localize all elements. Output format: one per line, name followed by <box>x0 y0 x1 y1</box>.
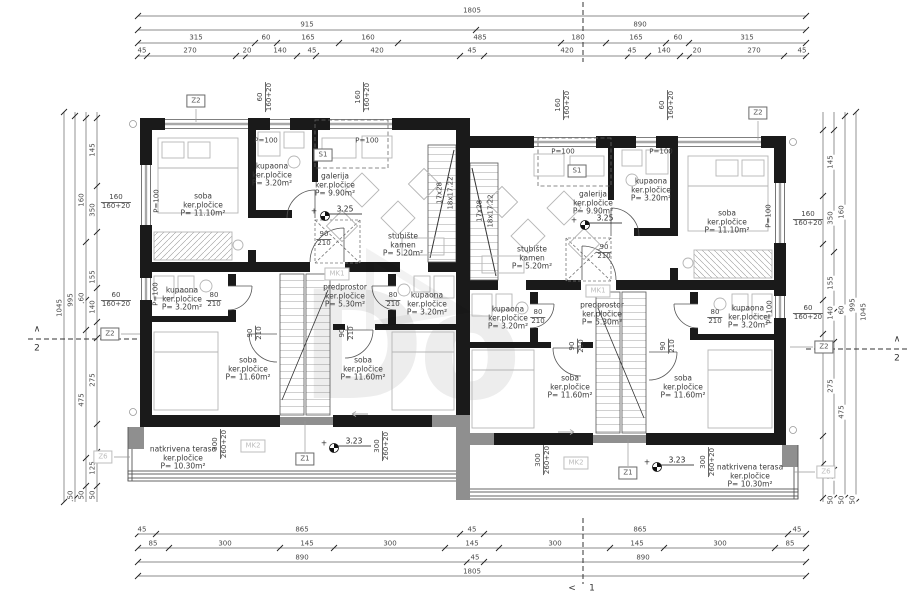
window-size-label: 160160+20 <box>101 194 131 210</box>
dim-label: 890 <box>635 555 650 562</box>
dim-label: 350 <box>828 210 835 225</box>
dim-label: 50 <box>850 495 857 506</box>
dim-label: 45 <box>470 555 481 562</box>
room-label-kupaona: kupaonaker.pločiceP= 3.20m² <box>728 304 768 330</box>
dim-label: 275 <box>90 372 97 387</box>
marker-s1: S1 <box>314 149 333 162</box>
door-size-label: 90210 <box>339 325 355 340</box>
marker-mk1: MK1 <box>324 268 349 281</box>
room-label-galerija: galerijaker.pločiceP= 9.90m² <box>315 172 355 198</box>
dim-label: 85 <box>785 541 796 548</box>
section-marker-arrow: ∧ <box>34 326 41 335</box>
marker-z6: Z6 <box>816 466 835 479</box>
level-plus: + <box>321 439 327 447</box>
dim-label: 350 <box>90 202 97 217</box>
room-label-soba: sobaker.pločiceP= 11.60m² <box>226 356 271 382</box>
dim-label: 180 <box>570 35 585 42</box>
dim-label: 165 <box>628 35 643 42</box>
room-label-soba: sobaker.pločiceP= 11.10m² <box>181 192 226 218</box>
dim-label: 160 <box>79 192 86 207</box>
dim-label: 160 <box>360 35 375 42</box>
dim-label: 475 <box>839 404 846 419</box>
dim-label: 140 <box>656 48 671 55</box>
parapet-label: P=100 <box>649 149 672 156</box>
window-size-label: 300260+20 <box>700 447 716 477</box>
dim-label: 45 <box>467 527 478 534</box>
window-size-label: 60160+20 <box>257 82 273 112</box>
dim-label: 45 <box>307 48 318 55</box>
dim-label: 45 <box>627 48 638 55</box>
marker-z1: Z1 <box>618 467 637 480</box>
stair-riser-label: 18x17.22 <box>488 194 495 227</box>
room-label-terasa: natkrivena terasaker.pločiceP= 10.30m² <box>717 463 783 489</box>
dim-label: 45 <box>467 48 478 55</box>
marker-mk2: MK2 <box>563 457 588 470</box>
section-marker-number: 1 <box>589 585 595 594</box>
parapet-label: P=100 <box>153 282 160 305</box>
door-size-label: 80210 <box>530 309 545 325</box>
room-label-kupaona: kupaonaker.pločiceP= 3.20m² <box>162 286 202 312</box>
room-label-kupaona: kupaonaker.pločiceP= 3.20m² <box>252 162 292 188</box>
parapet-label: P=100 <box>551 149 574 156</box>
dim-label: 485 <box>472 35 487 42</box>
section-marker-number: 2 <box>34 345 40 354</box>
window-size-label: 160160+20 <box>355 82 371 112</box>
parapet-label: P=100 <box>254 138 277 145</box>
dim-label: 155 <box>90 269 97 284</box>
door-size-label: 90210 <box>596 244 611 260</box>
room-label-stubiste: stubištekamenP= 5.20m² <box>383 232 423 258</box>
room-label-terasa: natkrivena terasaker.pločiceP= 10.30m² <box>150 445 216 471</box>
room-label-kupaona: kupaonaker.pločiceP= 3.20m² <box>631 177 671 203</box>
dim-label: 45 <box>797 48 808 55</box>
dim-label: 995 <box>850 297 857 312</box>
dim-label: 165 <box>300 35 315 42</box>
dim-label: 1805 <box>462 569 482 576</box>
window-size-label: 300260+20 <box>374 431 390 461</box>
marker-z6: Z6 <box>93 451 112 464</box>
dim-label: 890 <box>294 555 309 562</box>
plan-drawing <box>0 0 920 604</box>
section-marker-arrow: ∧ <box>894 336 901 345</box>
dim-label: 890 <box>632 22 647 29</box>
room-label-stubiste: stubištekamenP= 5.20m² <box>512 245 552 271</box>
door-size-label: 90210 <box>660 338 676 353</box>
door-size-label: 90210 <box>247 325 263 340</box>
parapet-label: P=100 <box>767 300 774 323</box>
marker-mk1: MK1 <box>585 285 610 298</box>
room-label-predprostor: predprostorker.pločiceP= 5.30m² <box>580 301 624 327</box>
window-size-label: 160160+20 <box>793 211 823 227</box>
room-label-predprostor: predprostorker.pločiceP= 5.30m² <box>323 283 367 309</box>
window-size-label: 160160+20 <box>555 90 571 120</box>
dim-label: 1045 <box>57 298 64 318</box>
dim-label: 420 <box>369 48 384 55</box>
dim-label: 270 <box>182 48 197 55</box>
window-size-label: 300260+20 <box>212 429 228 459</box>
marker-s1: S1 <box>568 165 587 178</box>
parapet-label: P=100 <box>355 138 378 145</box>
dim-label: 140 <box>828 305 835 320</box>
dim-label: 995 <box>68 292 75 307</box>
dim-label: 50 <box>79 490 86 501</box>
marker-z2: Z2 <box>814 341 833 354</box>
level-value: 3.25 <box>337 205 354 213</box>
section-marker-arrow: < <box>568 585 576 594</box>
dim-label: 300 <box>382 541 397 548</box>
stair-riser-label: 17x28 <box>477 200 484 222</box>
dim-label: 420 <box>559 48 574 55</box>
dim-label: 300 <box>547 541 562 548</box>
dim-label: 270 <box>746 48 761 55</box>
windows <box>142 120 393 301</box>
dim-label: 140 <box>272 48 287 55</box>
level-value: 3.23 <box>346 437 363 445</box>
dim-label: 915 <box>299 22 314 29</box>
door-size-label: 80210 <box>707 309 722 325</box>
dim-label: 145 <box>464 541 479 548</box>
level-plus: + <box>644 458 650 466</box>
dim-label: 145 <box>90 142 97 157</box>
dim-label: 1045 <box>861 302 868 322</box>
dim-label: 60 <box>261 35 272 42</box>
door-size-label: 80210 <box>206 292 221 308</box>
window-size-label: 60160+20 <box>101 292 131 308</box>
dim-label: 50 <box>828 495 835 506</box>
dim-label: 20 <box>692 48 703 55</box>
room-label-soba: sobaker.pločiceP= 11.10m² <box>705 209 750 235</box>
dim-label: 145 <box>299 541 314 548</box>
window-size-label: 60160+20 <box>793 305 823 321</box>
level-value: 3.25 <box>597 214 614 222</box>
dim-label: 50 <box>68 490 75 501</box>
dim-label: 160 <box>839 204 846 219</box>
parapet-label: P=100 <box>154 189 161 212</box>
dim-label: 300 <box>712 541 727 548</box>
dim-label: 315 <box>739 35 754 42</box>
room-label-kupaona: kupaonaker.pločiceP= 3.20m² <box>488 305 528 331</box>
floor-plan: Do <box>0 0 920 604</box>
marker-mk2: MK2 <box>240 440 265 453</box>
section-marker-number: 2 <box>894 355 900 364</box>
dim-label: 45 <box>137 527 148 534</box>
dim-label: 300 <box>217 541 232 548</box>
dim-label: 50 <box>839 495 846 506</box>
marker-z2: Z2 <box>100 328 119 341</box>
dim-label: 45 <box>137 48 148 55</box>
door-size-label: 90210 <box>569 338 585 353</box>
dim-label: 275 <box>828 378 835 393</box>
dim-label: 1805 <box>462 8 482 15</box>
dim-label: 155 <box>828 275 835 290</box>
level-plus: + <box>311 207 317 215</box>
dim-label: 145 <box>828 154 835 169</box>
marker-z2: Z2 <box>748 107 767 120</box>
dim-label: 20 <box>242 48 253 55</box>
level-value: 3.23 <box>669 456 686 464</box>
dim-label: 85 <box>148 541 159 548</box>
room-label-soba: sobaker.pločiceP= 11.60m² <box>341 356 386 382</box>
level-plus: + <box>571 216 577 224</box>
dim-label: 865 <box>632 527 647 534</box>
dim-label: 140 <box>90 299 97 314</box>
window-size-label: 60160+20 <box>659 90 675 120</box>
marker-z2: Z2 <box>186 95 205 108</box>
window-size-label: 300260+20 <box>535 445 551 475</box>
stair-riser-label: 17x28 <box>437 182 444 204</box>
reference-circles <box>130 121 137 416</box>
dim-label: 60 <box>839 305 846 316</box>
room-label-galerija: galerijaker.pločiceP= 9.90m² <box>573 190 613 216</box>
room-label-soba: sobaker.pločiceP= 11.60m² <box>548 374 593 400</box>
dim-label: 315 <box>188 35 203 42</box>
dim-label: 60 <box>673 35 684 42</box>
dim-label: 50 <box>90 490 97 501</box>
door-size-label: 90210 <box>316 231 331 247</box>
dim-label: 60 <box>79 292 86 303</box>
room-label-soba: sobaker.pločiceP= 11.60m² <box>661 374 706 400</box>
dim-label: 45 <box>792 527 803 534</box>
room-label-kupaona: kupaonaker.pločiceP= 3.20m² <box>407 291 447 317</box>
marker-z1: Z1 <box>295 453 314 466</box>
dim-label: 145 <box>629 541 644 548</box>
stair-riser-label: 18x17.22 <box>448 176 455 209</box>
dim-label: 865 <box>294 527 309 534</box>
door-size-label: 80210 <box>385 292 400 308</box>
dim-label: 475 <box>79 392 86 407</box>
parapet-label: P=100 <box>766 204 773 227</box>
